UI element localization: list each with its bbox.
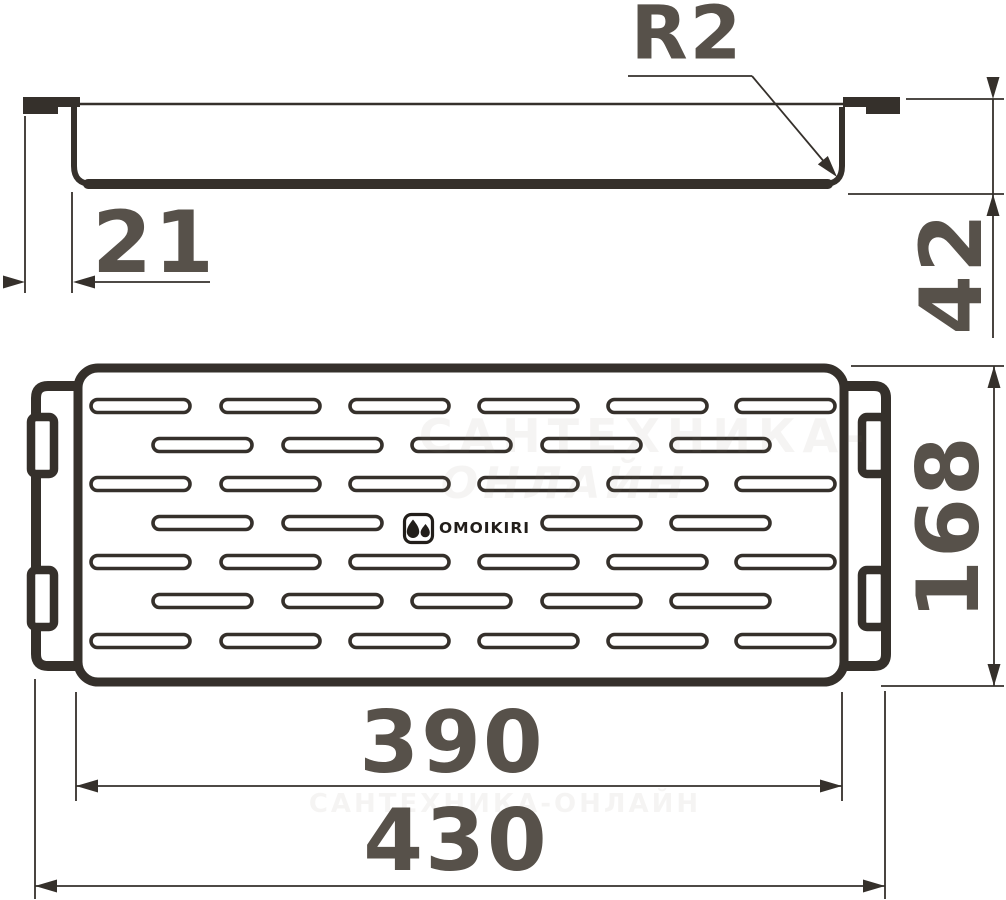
drain-slot	[542, 595, 641, 608]
dimension-arrow-icon	[863, 880, 885, 893]
drain-slot	[91, 556, 190, 569]
radius-callout: R2	[628, 0, 842, 181]
dimension-arrow-icon	[820, 780, 842, 793]
drain-slot	[671, 517, 770, 530]
drain-slot	[91, 400, 190, 413]
drain-slot	[153, 517, 252, 530]
drain-slot	[608, 556, 707, 569]
drain-slot	[221, 478, 320, 491]
watermark-text: ОНЛАЙН	[441, 456, 689, 509]
drain-slot	[542, 517, 641, 530]
drain-slot	[91, 478, 190, 491]
right-clip-bottom	[862, 570, 885, 627]
dimension-label-height: 42	[902, 211, 1002, 335]
dimension-label-radius: R2	[631, 0, 743, 77]
drain-slot	[350, 556, 449, 569]
dimension-label-overall-width: 430	[363, 791, 549, 891]
dimension-label-slot-width: 390	[359, 693, 545, 793]
drain-slot	[221, 556, 320, 569]
drain-slot	[283, 517, 382, 530]
side-view-right-hook	[843, 97, 900, 114]
drain-slot	[608, 635, 707, 648]
dimension-arrow-icon	[988, 366, 1001, 388]
drain-slot	[350, 635, 449, 648]
colander-dimension-drawing: R2 21 42 OMOIKIRI	[0, 0, 1006, 900]
dimension-label-depth: 168	[899, 434, 999, 620]
drain-slot	[283, 439, 382, 452]
drain-slot	[736, 478, 835, 491]
drain-slot	[153, 595, 252, 608]
leader-line	[752, 76, 831, 170]
watermark-text: САНТЕХНИКА-	[419, 409, 871, 463]
drain-slot	[736, 556, 835, 569]
drain-slot	[221, 635, 320, 648]
side-view-channel	[74, 107, 842, 184]
dimension-arrow-icon	[988, 664, 1001, 686]
drain-slot	[412, 595, 511, 608]
brand-name: OMOIKIRI	[439, 519, 530, 537]
left-clip-bottom	[31, 570, 54, 627]
drain-slot	[350, 478, 449, 491]
drain-slot	[153, 439, 252, 452]
drain-slot	[671, 595, 770, 608]
dimension-flange-21: 21	[3, 116, 216, 293]
dimension-slot-width-390: 390	[76, 692, 842, 801]
drain-slot	[479, 556, 578, 569]
drain-slot	[221, 400, 320, 413]
drain-slot	[91, 635, 190, 648]
dimension-arrow-icon	[987, 77, 1000, 99]
dimension-arrow-icon	[76, 780, 98, 793]
dimension-label-flange: 21	[92, 193, 216, 293]
drain-slot	[283, 595, 382, 608]
dimension-height-42: 42	[848, 77, 1004, 338]
dimension-arrow-icon	[3, 276, 25, 289]
side-view-profile	[23, 97, 900, 184]
drain-slot	[479, 635, 578, 648]
dimension-arrow-icon	[35, 880, 57, 893]
technical-drawing-canvas: R2 21 42 OMOIKIRI	[0, 0, 1006, 900]
drain-slot	[736, 635, 835, 648]
left-clip-top	[31, 417, 54, 474]
